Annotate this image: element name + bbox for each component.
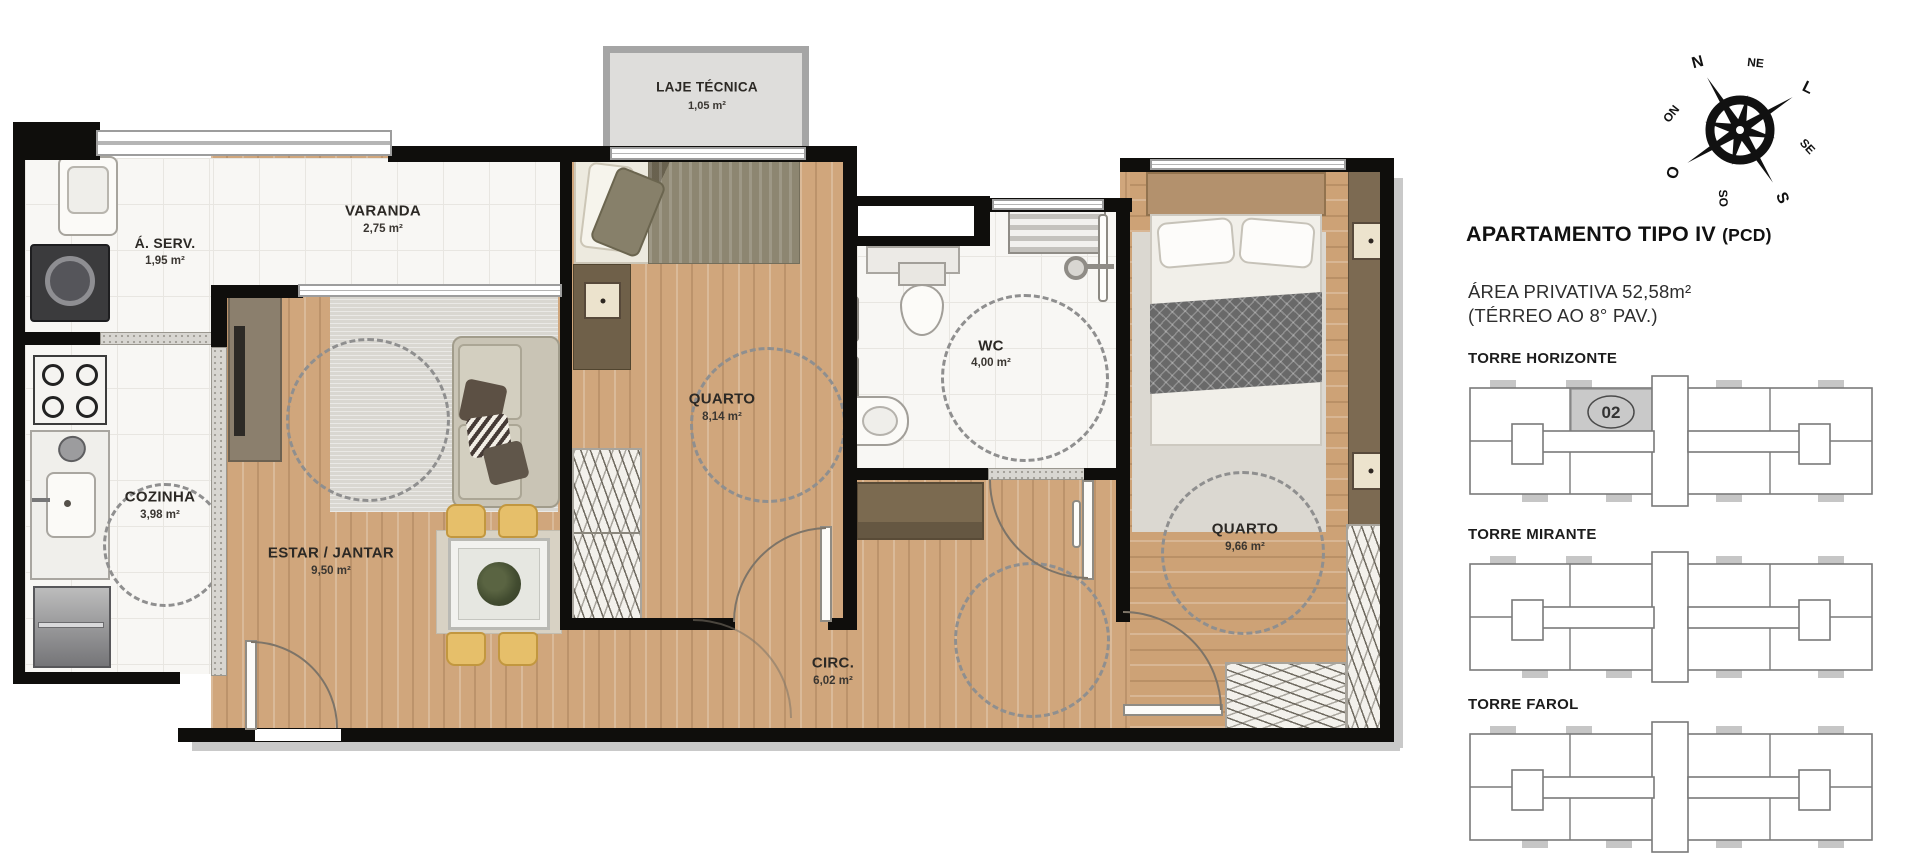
turning-circle-living (286, 338, 450, 502)
floor-plan: LAJE TÉCNICA 1,05 m² Á. SERV. 1,95 m² VA… (0, 0, 1460, 865)
bed-runner-blanket (1150, 292, 1322, 394)
room-area-estar: 9,50 m² (311, 565, 351, 577)
compass-point-label: L (1799, 78, 1816, 98)
wc-sink-basin (862, 406, 898, 436)
tower-diagram-mirante (1466, 548, 1878, 686)
compass-rose-icon: NNELSESSOONO (1650, 35, 1830, 225)
apartment-title-suffix: (PCD) (1722, 225, 1772, 245)
compass-point-label: SE (1797, 136, 1818, 157)
wc-door-threshold (988, 468, 1086, 480)
wardrobe-divider (574, 532, 640, 534)
compass-point-label: NO (1660, 102, 1682, 125)
room-label-quarto2: QUARTO (1212, 521, 1279, 538)
compass-point-label: SO (1716, 189, 1731, 207)
turning-circle-bedroom1 (690, 347, 846, 503)
kitchen-sink (46, 472, 96, 538)
apartment-title: APARTAMENTO TIPO IV (PCD) (1466, 222, 1772, 247)
dining-chair (446, 632, 486, 666)
apartment-title-text: APARTAMENTO TIPO IV (1466, 222, 1716, 246)
tower-diagram-farol (1466, 718, 1878, 856)
room-area-cozinha: 3,98 m² (140, 509, 180, 521)
stove-burner (76, 364, 98, 386)
stove-burner (42, 364, 64, 386)
shower-grab-bar (1098, 214, 1108, 302)
bedroom2-door-leaf (1123, 704, 1223, 716)
bed-double-headboard (1146, 172, 1326, 216)
compass-point-label: N (1690, 53, 1705, 72)
window-bedroom1 (610, 147, 806, 160)
wall (560, 618, 735, 630)
wall (13, 122, 100, 160)
bed-single-blanket (648, 154, 800, 264)
room-area-varanda: 2,75 m² (363, 223, 403, 235)
tower-name-farol: TORRE FAROL (1468, 696, 1579, 713)
kitchen-faucet (32, 498, 50, 502)
room-label-wc: WC (978, 338, 1004, 355)
entrance-threshold (255, 729, 341, 741)
turning-circle-bedroom2 (1161, 471, 1325, 635)
turning-circle-hall (954, 562, 1110, 718)
dining-chair (498, 632, 538, 666)
wall (178, 728, 1394, 742)
room-area-quarto2: 9,66 m² (1225, 541, 1265, 553)
bed-pillow (1238, 217, 1316, 269)
washing-machine-door (45, 256, 95, 306)
room-label-varanda: VARANDA (345, 203, 421, 220)
dining-chair (446, 504, 486, 538)
counter-pass (100, 332, 213, 345)
kitchen-faucet-knob (64, 500, 71, 507)
room-label-estar: ESTAR / JANTAR (268, 545, 394, 562)
table-plant (477, 562, 521, 606)
room-area-quarto1: 8,14 m² (702, 411, 742, 423)
balcony-slider (298, 284, 562, 297)
bedside-lamp (584, 282, 621, 319)
fridge-handle (38, 622, 104, 628)
room-label-quarto1: QUARTO (689, 391, 756, 408)
wall (857, 468, 990, 480)
bedroom1-door-leaf (820, 526, 832, 622)
balcony-rail (96, 130, 392, 156)
tv (234, 326, 245, 436)
wall (560, 146, 572, 630)
room-area-laje: 1,05 m² (688, 100, 726, 112)
wc-door-leaf (1082, 480, 1094, 580)
tower-name-mirante: TORRE MIRANTE (1468, 526, 1597, 543)
wc-door-handle (1072, 500, 1081, 548)
room-label-aserv: Á. SERV. (135, 235, 196, 251)
plan-shadow-bottom (192, 742, 1400, 751)
dining-chair (498, 504, 538, 538)
wardrobe-bedroom1 (572, 448, 642, 620)
exterior-notch-wc (857, 140, 1120, 198)
entrance-door-leaf (245, 640, 257, 730)
exterior-notch-q2 (1120, 136, 1394, 158)
hall-sideboard (856, 482, 984, 540)
plan-shadow-right (1394, 178, 1403, 748)
room-area-aserv: 1,95 m² (145, 255, 185, 267)
wall (13, 672, 180, 684)
stove-burner (42, 396, 64, 418)
wardrobe-bedroom2-bottom (1225, 662, 1347, 730)
floor-plan-page: { "plan": { "rooms": { "laje": {"name": … (0, 0, 1905, 865)
turning-circle-wc (941, 294, 1109, 462)
compass-point-label: O (1662, 164, 1682, 181)
room-label-laje: LAJE TÉCNICA (656, 80, 758, 95)
window-bedroom2 (1150, 159, 1346, 170)
shower-knob (1064, 256, 1088, 280)
room-label-circ: CIRC. (812, 655, 854, 672)
highlighted-unit-number: 02 (1602, 403, 1621, 422)
wall (828, 618, 857, 630)
private-area-line: ÁREA PRIVATIVA 52,58m² (1468, 281, 1691, 303)
wall (13, 122, 25, 684)
wall (211, 285, 303, 298)
room-area-circ: 6,02 m² (813, 675, 853, 687)
toilet-tank (898, 262, 946, 286)
bed-pillow (1156, 217, 1236, 269)
compass-point-label: S (1772, 190, 1792, 207)
exterior-notch-bl (13, 684, 178, 742)
wc-niche-inset (858, 206, 974, 236)
stove-burner (76, 396, 98, 418)
tower-name-horizonte: TORRE HORIZONTE (1468, 350, 1617, 367)
counter-divider (211, 347, 227, 676)
room-area-wc: 4,00 m² (971, 357, 1011, 369)
tower-diagram-horizonte: 02 (1466, 372, 1878, 510)
wall (1380, 158, 1394, 742)
wall (1116, 198, 1130, 622)
shower-knob-stem (1086, 264, 1114, 269)
laundry-tank-basin (67, 166, 109, 214)
room-label-cozinha: COZINHA (125, 489, 195, 506)
window-wc (992, 199, 1104, 210)
compass-point-label: NE (1747, 55, 1765, 71)
floors-line: (TÉRREO AO 8° PAV.) (1468, 305, 1658, 327)
wall (25, 332, 103, 345)
